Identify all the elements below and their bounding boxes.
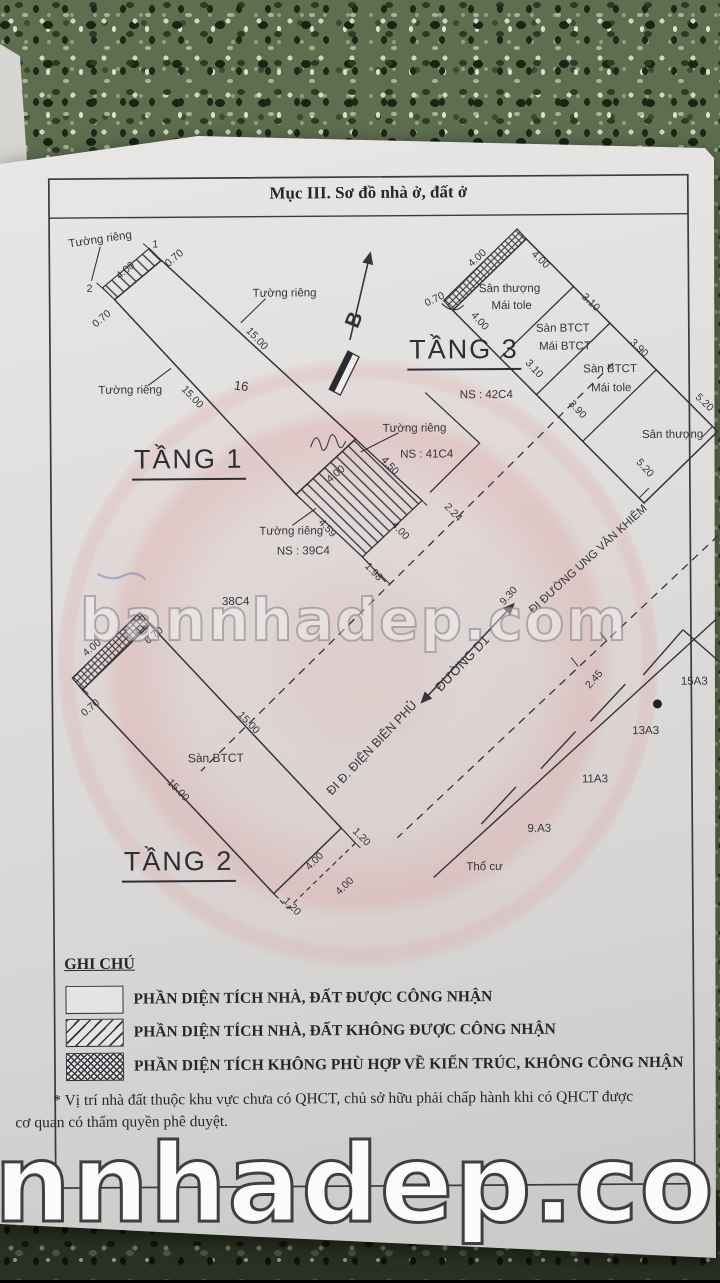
lot-15a3: 15A3 <box>681 676 708 688</box>
parcel-ns42c4: NS : 42C4 <box>460 389 513 401</box>
tang3-cell3-line2: Mái tole <box>591 382 631 394</box>
legend-item: PHẦN DIỆN TÍCH KHÔNG PHÙ HỢP VỀ KIẾN TRÚ… <box>66 1049 684 1081</box>
tang1-dim: 4.00 <box>114 259 137 281</box>
tang3-dim: 4.00 <box>466 247 489 270</box>
road-to-dien-bien-phu: ĐI Đ. ĐIỆN BIÊN PHỦ <box>324 698 420 798</box>
legend-swatch-architecture-nonconforming <box>66 1053 124 1081</box>
tang1-dim: 1.98 <box>362 560 385 583</box>
tang2-dim: 4.00 <box>333 875 356 898</box>
watermark-middle: bannhadep.com <box>80 586 629 654</box>
tang3-dim: 5.20 <box>693 391 716 414</box>
tang1-wall-label-1: Tường riêng <box>68 229 133 250</box>
tang3-dim: 0.70 <box>423 290 447 310</box>
tang3-dim: 5.20 <box>633 456 656 479</box>
legend-item: PHẦN DIỆN TÍCH NHÀ, ĐẤT ĐƯỢC CÔNG NHẬN <box>65 983 492 1014</box>
tang2-dim: 15.00 <box>165 777 192 804</box>
tang2-dim: 1.20 <box>280 895 303 918</box>
legend-label: PHẦN DIỆN TÍCH NHÀ, ĐẤT KHÔNG ĐƯỢC CÔNG … <box>134 1021 556 1042</box>
legend-label: PHẦN DIỆN TÍCH NHÀ, ĐẤT ĐƯỢC CÔNG NHẬN <box>133 988 492 1009</box>
watermark-bottom: nnhadep.com <box>0 1122 720 1247</box>
tang3-cell3-line1: Sàn BTCT <box>583 363 637 375</box>
legend-item: PHẦN DIỆN TÍCH NHÀ, ĐẤT KHÔNG ĐƯỢC CÔNG … <box>66 1016 556 1047</box>
tang2-dim: 4.00 <box>303 850 326 873</box>
tang1-wall-label-2: Tường riêng <box>253 287 317 299</box>
road-dim-245: 2.45 <box>583 668 606 691</box>
tang2-floor-material: Sàn BTCT <box>188 751 244 765</box>
legend-swatch-recognized <box>65 986 123 1014</box>
tang3-cell1-line2: Mái tole <box>491 300 531 312</box>
tang3-cell1-line1: Sân thượng <box>479 283 540 295</box>
tang2-title: TẦNG 2 <box>122 846 236 883</box>
tang2-dim: 0.70 <box>79 697 102 719</box>
tang3-dim: 3.10 <box>579 291 602 314</box>
parcel-ns41c4: NS : 41C4 <box>400 448 453 460</box>
tang1-title: TẦNG 1 <box>132 444 246 481</box>
tang1-wall-label-3: Tường riêng <box>98 384 162 396</box>
tang1-dim: 4.50 <box>378 454 401 477</box>
lot-9a3: 9.A3 <box>527 823 551 835</box>
tang3-dim: 4.00 <box>529 248 552 271</box>
page-title: Mục III. Sơ đồ nhà ở, đất ở <box>49 181 688 205</box>
lot-tho-cu: Thổ cư <box>466 861 503 873</box>
tang3-dim: 3.90 <box>627 337 650 360</box>
lot-13a3: 13A3 <box>632 725 659 737</box>
tang3-dim: 3.90 <box>566 398 589 421</box>
tang2-dim: 1.20 <box>350 825 373 848</box>
tang3-cell4-line1: Sân thượng <box>642 429 703 441</box>
legend-swatch-not-recognized <box>66 1019 124 1047</box>
tang1-dim: 4.00 <box>389 519 412 542</box>
tang1-wall-label-4: Tường riêng <box>383 422 447 434</box>
tang2-dim: 15.00 <box>235 709 262 736</box>
north-label: B <box>341 309 369 332</box>
tang3-dim: 3.10 <box>523 357 546 380</box>
tang1-wall-label-5: Tường riêng <box>259 525 323 537</box>
tang1-house-number: 16 <box>233 377 249 394</box>
lot-11a3: 11A3 <box>582 773 608 785</box>
tang3-cell2-line2: Mái BTCT <box>539 340 591 352</box>
tang3-dim: 4.00 <box>468 310 491 333</box>
tang1-corner-2: 2 <box>87 283 93 295</box>
tang1-dim: 0.70 <box>90 308 113 330</box>
tang1-dim: 4.00 <box>324 463 347 485</box>
footnote-line1: * Vị trí nhà đất thuộc khu vực chưa có Q… <box>53 1088 633 1110</box>
photo-of-cadastral-document: { "title": "Mục III. Sơ đồ nhà ở, đất ở"… <box>0 0 720 1280</box>
tang1-dim: 0.70 <box>163 247 186 269</box>
legend-heading: GHI CHÚ <box>64 956 135 974</box>
tang1-corner-1: 1 <box>152 238 158 250</box>
tang3-title: TẦNG 3 <box>407 334 521 371</box>
tang1-dim: 2.24 <box>442 501 465 524</box>
tang1-dim: 15.00 <box>244 325 271 352</box>
tang3-cell2-line1: Sàn BTCT <box>536 322 590 334</box>
legend-label: PHẦN DIỆN TÍCH KHÔNG PHÙ HỢP VỀ KIẾN TRÚ… <box>134 1054 684 1076</box>
parcel-ns39c4: NS : 39C4 <box>277 545 330 557</box>
tang1-dim: 15.00 <box>179 383 206 410</box>
